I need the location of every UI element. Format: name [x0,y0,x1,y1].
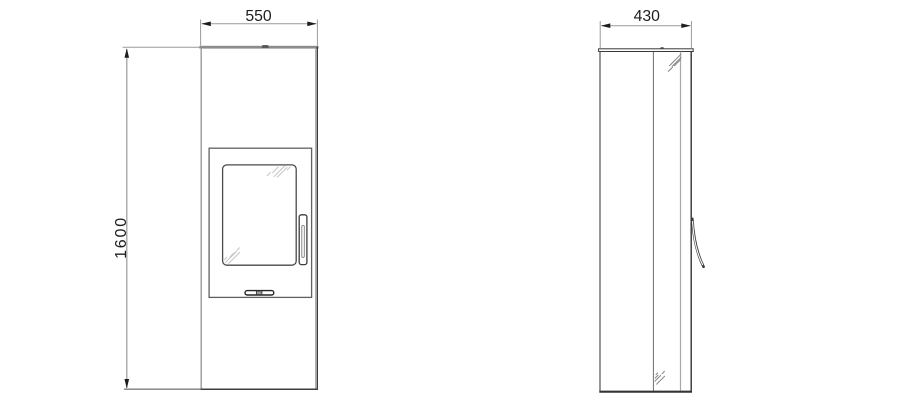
svg-text:430: 430 [634,8,661,25]
svg-text:1600: 1600 [113,216,130,259]
svg-text:550: 550 [245,8,272,25]
